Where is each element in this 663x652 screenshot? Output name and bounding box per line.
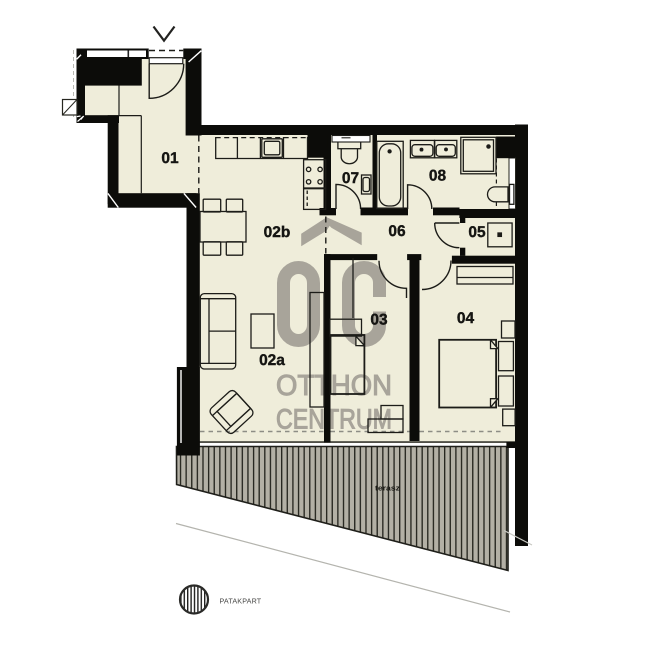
svg-text:03: 03 [370,312,388,329]
svg-text:01: 01 [161,150,179,167]
svg-text:08: 08 [429,168,447,185]
svg-text:OTTHON: OTTHON [276,370,392,402]
svg-text:02a: 02a [259,352,285,369]
svg-text:terasz: terasz [375,484,400,493]
svg-text:05: 05 [468,224,486,241]
svg-text:02b: 02b [264,224,291,241]
svg-text:04: 04 [457,310,475,327]
svg-text:PATAKPART: PATAKPART [220,597,262,606]
svg-text:07: 07 [342,170,359,187]
svg-text:06: 06 [388,223,406,240]
